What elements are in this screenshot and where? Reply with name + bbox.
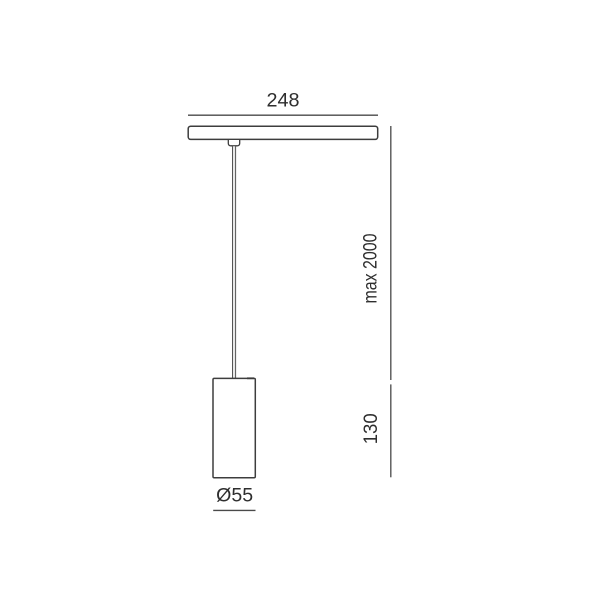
svg-text:Ø55: Ø55 — [216, 485, 253, 507]
svg-text:248: 248 — [267, 90, 300, 112]
svg-text:max 2000: max 2000 — [360, 233, 382, 303]
svg-text:130: 130 — [360, 413, 382, 444]
